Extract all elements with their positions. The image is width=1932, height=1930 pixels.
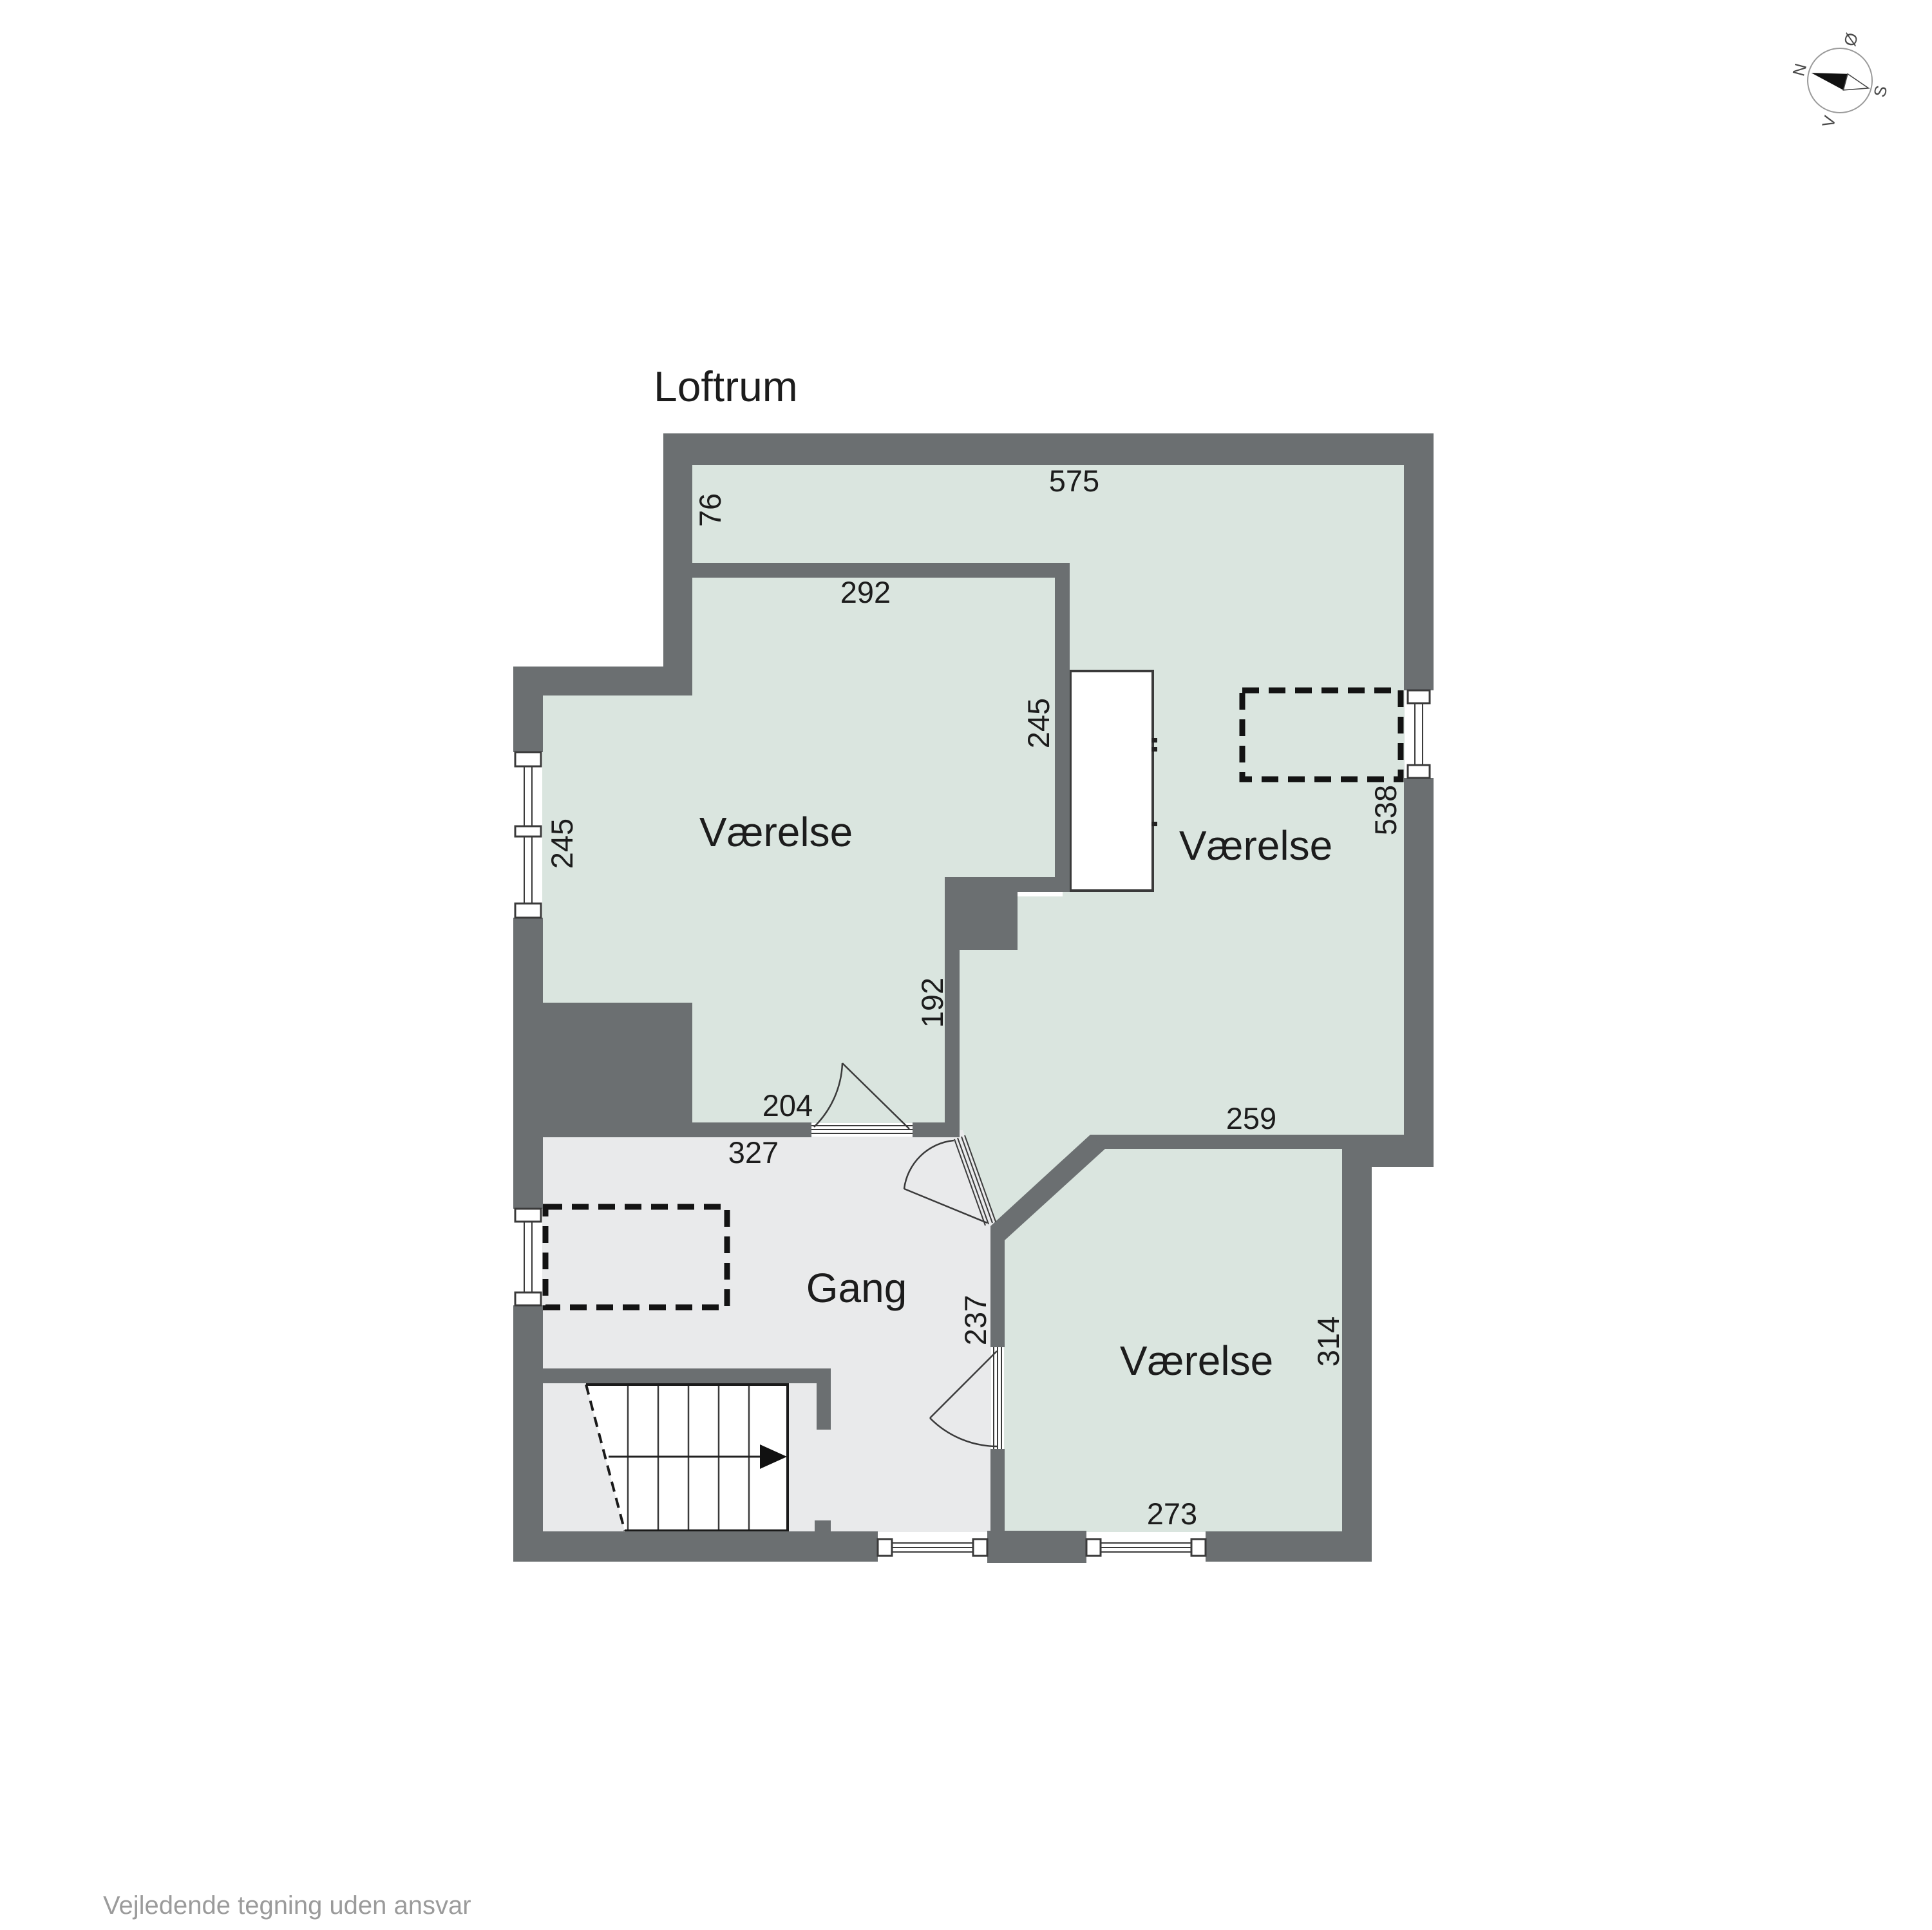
dim-292: 292: [840, 575, 891, 609]
room-label-gang: Gang: [806, 1265, 907, 1311]
compass-letter-e: Ø: [1840, 31, 1862, 48]
window-bottom-room: [1086, 1532, 1206, 1561]
window-left-upper: [514, 752, 542, 918]
page-title: Loftrum: [654, 363, 798, 410]
dim-575: 575: [1049, 464, 1099, 498]
dim-538: 538: [1368, 785, 1403, 835]
compass-letter-s: S: [1870, 84, 1891, 100]
dim-245-center: 245: [1021, 698, 1056, 748]
room-label-vaerelse-bottom: Værelse: [1120, 1338, 1273, 1384]
dim-327: 327: [728, 1135, 779, 1169]
compass-needle-north: [1809, 65, 1848, 90]
dim-76: 76: [693, 493, 727, 527]
compass-letter-w: V: [1818, 113, 1840, 129]
compass-letter-n: N: [1788, 61, 1810, 78]
floor-plan: Loftrum Værelse Værelse Gang Værelse 575…: [513, 363, 1434, 1563]
room-label-vaerelse-right: Værelse: [1179, 822, 1332, 869]
window-left-lower: [514, 1209, 542, 1305]
compass-needle-south: [1843, 74, 1870, 97]
window-right: [1405, 690, 1433, 778]
room-label-vaerelse-left: Værelse: [699, 809, 853, 855]
dim-204: 204: [762, 1088, 813, 1122]
dim-314: 314: [1311, 1316, 1345, 1367]
dim-245-left: 245: [545, 818, 579, 869]
dim-192: 192: [915, 978, 949, 1028]
disclaimer-text: Vejledende tegning uden ansvar: [103, 1891, 471, 1920]
compass-icon: N Ø S V: [1777, 20, 1902, 140]
chimney-shaft: [1070, 671, 1157, 891]
dim-237: 237: [958, 1295, 992, 1345]
dim-259: 259: [1226, 1101, 1276, 1135]
dim-273: 273: [1147, 1497, 1197, 1531]
window-bottom-gang: [878, 1532, 987, 1561]
